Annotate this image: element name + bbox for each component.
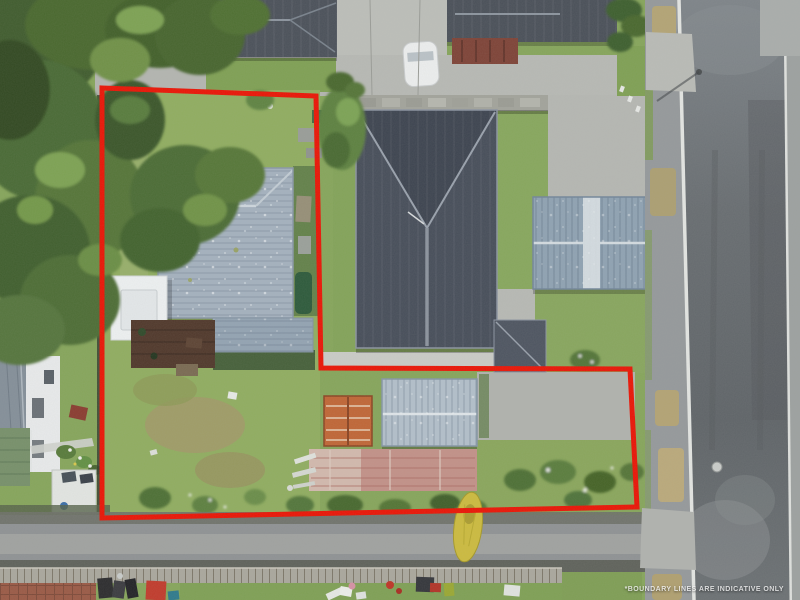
- boundary-disclaimer-watermark: *BOUNDARY LINES ARE INDICATIVE ONLY: [625, 586, 784, 593]
- aerial-property-photo: *BOUNDARY LINES ARE INDICATIVE ONLY: [0, 0, 800, 600]
- photo-grain: [0, 0, 800, 600]
- photo-canvas: [0, 0, 800, 600]
